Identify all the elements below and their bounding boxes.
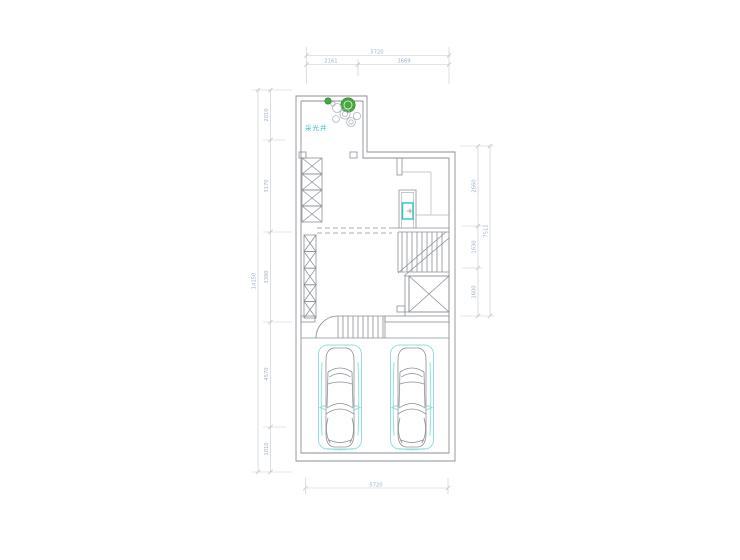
plant-icon (333, 104, 342, 113)
dim-right-total: 7511 (484, 224, 490, 237)
entry-door-arc (316, 316, 338, 338)
dimensions-top: 5720 2161 3669 (304, 47, 451, 84)
dim-top-total: 5720 (370, 50, 383, 56)
dim-left-seg-2: 3390 (264, 270, 270, 283)
garage (319, 345, 434, 450)
light-well-label: 采光井 (305, 123, 328, 132)
car-right (391, 345, 434, 450)
staircase-garage (338, 316, 385, 338)
opening-dashed-lines (317, 228, 392, 233)
dim-left-seg-4: 1010 (264, 442, 270, 455)
dimensions-left: 14150 2010 3170 3390 4570 1010 (252, 88, 293, 474)
floor-plan-canvas: 5720 2161 3669 5720 14150 2010 3170 3390… (0, 0, 740, 560)
plant-icon (333, 116, 340, 123)
dimensions-bottom: 5720 (303, 478, 450, 494)
dim-right-seg-2: 1600 (472, 285, 478, 298)
dim-top-left: 2161 (324, 59, 337, 65)
plant-icon (353, 112, 360, 119)
light-well: 采光井 (305, 98, 361, 132)
car-left (319, 345, 362, 450)
dim-left-seg-0: 2010 (264, 108, 270, 121)
dim-left-seg-1: 3170 (264, 179, 270, 192)
plant-icon (349, 120, 353, 124)
hatched-wall-lower (304, 235, 316, 318)
plant-icon (325, 98, 331, 104)
floor-plan-drawing: 5720 2161 3669 5720 14150 2010 3170 3390… (0, 0, 740, 560)
plants (325, 98, 361, 127)
hatched-wall-upper (302, 158, 322, 222)
dim-bottom-total: 5720 (369, 483, 382, 489)
dim-top-right: 3669 (397, 59, 410, 65)
dim-left-seg-3: 4570 (264, 367, 270, 380)
elevator-shaft (405, 276, 449, 316)
plant-icon (347, 118, 356, 127)
plant-icon (342, 111, 347, 116)
dimensions-right: 7511 2660 1630 1600 (460, 144, 494, 318)
dim-left-total: 14150 (252, 273, 258, 290)
dim-right-seg-0: 2660 (472, 179, 478, 192)
dim-right-seg-1: 1630 (472, 240, 478, 253)
stair-break-lines (398, 232, 449, 276)
staircase-upper (392, 228, 449, 276)
duct-fixture (403, 203, 414, 219)
